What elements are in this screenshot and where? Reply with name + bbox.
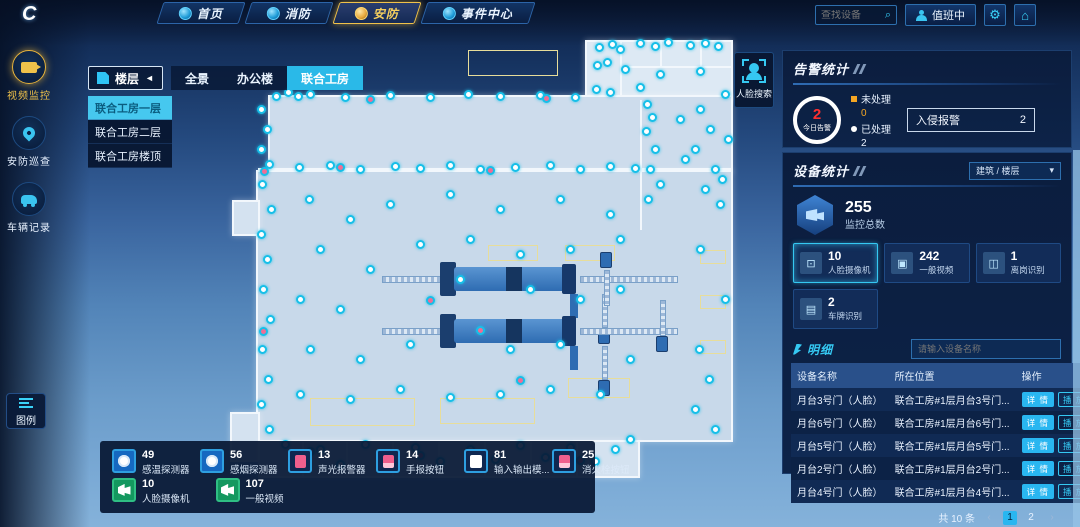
device-marker[interactable] — [566, 245, 575, 254]
face-search-label: 人脸搜索 — [736, 87, 772, 100]
device-marker[interactable] — [656, 70, 665, 79]
device-marker[interactable] — [636, 39, 645, 48]
pagination-total: 共 10 条 — [938, 510, 975, 525]
device-marker[interactable] — [426, 93, 435, 102]
device-name-search-input[interactable] — [918, 344, 1054, 354]
legend-label: 消火栓按钮 — [582, 462, 630, 476]
general-video-legend-icon — [216, 478, 240, 502]
device-marker[interactable] — [464, 90, 473, 99]
device-marker[interactable] — [496, 92, 505, 101]
device-marker[interactable] — [346, 215, 355, 224]
flash-icon — [793, 344, 802, 355]
tab-label: 首页 — [197, 5, 223, 22]
legend-count: 14 — [406, 449, 444, 462]
device-marker[interactable] — [426, 296, 435, 305]
app-root: C 首页 消防 安防 事件中心 ⌕ — [0, 0, 1080, 527]
device-marker[interactable] — [631, 164, 640, 173]
on-duty-button[interactable]: 值班中 — [905, 4, 976, 26]
duty-person-icon — [916, 10, 927, 21]
device-legend-bar: 49 感温探测器 56 感烟探测器 13 声光报警器 — [100, 441, 595, 513]
monitor-total: 255 监控总数 — [783, 187, 1071, 241]
card-face-camera[interactable]: ⊡ 10 人脸摄像机 — [793, 243, 878, 283]
scrollbar[interactable] — [1073, 150, 1080, 527]
legend-manual-alarm-button[interactable]: 14 手报按钮 — [376, 449, 438, 476]
today-alarm-gauge: 2 今日告警 — [793, 96, 841, 144]
device-location: 联合工房#1层月台4号门... — [889, 480, 1016, 503]
fire-tab-icon — [267, 7, 280, 20]
sidebar-item-vehicle-records[interactable]: 车辆记录 — [7, 182, 51, 234]
legend-count: 107 — [246, 478, 284, 491]
device-marker[interactable] — [306, 345, 315, 354]
building-floor-filter-dropdown[interactable]: 建筑 / 楼层 ▾ — [969, 162, 1061, 180]
card-off-post-recognition[interactable]: ◫ 1 离岗识别 — [976, 243, 1061, 283]
device-marker[interactable] — [316, 245, 325, 254]
manual-alarm-button-icon — [376, 449, 400, 473]
app-logo: C — [22, 3, 48, 27]
device-marker[interactable] — [636, 83, 645, 92]
device-marker[interactable] — [476, 165, 485, 174]
device-marker[interactable] — [691, 405, 700, 414]
legend-label: 感烟探测器 — [230, 462, 278, 476]
device-marker[interactable] — [642, 127, 651, 136]
device-marker[interactable] — [691, 145, 700, 154]
device-marker[interactable] — [664, 38, 673, 47]
face-search-button[interactable]: 人脸搜索 — [734, 52, 774, 108]
device-marker[interactable] — [260, 167, 269, 176]
today-alarm-label: 今日告警 — [803, 123, 831, 133]
table-row: 月台2号门（人脸） 联合工房#1层月台2号门... 详 情 播 放 回 放 — [791, 457, 1080, 480]
pagination-prev[interactable]: ‹ — [982, 511, 996, 525]
detail-button[interactable]: 详 情 — [1022, 392, 1054, 407]
gear-icon: ⚙ — [989, 7, 1001, 23]
device-location: 联合工房#1层月台3号门... — [889, 388, 1016, 411]
legend-label: 感温探测器 — [142, 462, 190, 476]
home-button[interactable]: ⌂ — [1014, 4, 1036, 26]
settings-button[interactable]: ⚙ — [984, 4, 1006, 26]
sidebar-item-label: 视频监控 — [7, 87, 51, 102]
pagination-page-1[interactable]: 1 — [1003, 511, 1017, 525]
device-marker[interactable] — [718, 175, 727, 184]
monitor-total-label: 监控总数 — [845, 216, 885, 231]
device-marker[interactable] — [696, 245, 705, 254]
device-location: 联合工房#1层月台2号门... — [889, 457, 1016, 480]
io-module-icon — [464, 449, 488, 473]
device-marker[interactable] — [603, 58, 612, 67]
topbar-controls: ⌕ 值班中 ⚙ ⌂ — [815, 4, 1036, 26]
device-panel-title: 设备统计 — [793, 161, 849, 180]
device-marker[interactable] — [546, 385, 555, 394]
legend-io-module[interactable]: 81 输入输出模... — [464, 449, 526, 476]
chevron-down-icon: ▾ — [1049, 165, 1054, 176]
today-alarm-count: 2 — [813, 107, 821, 122]
monitor-total-value: 255 — [845, 199, 885, 217]
device-name: 月台3号门（人脸） — [791, 388, 889, 411]
device-marker[interactable] — [496, 390, 505, 399]
face-scan-icon — [742, 59, 766, 83]
device-marker[interactable] — [556, 195, 565, 204]
device-marker[interactable] — [263, 255, 272, 264]
home-tab-icon — [179, 7, 192, 20]
table-row: 月台4号门（人脸） 联合工房#1层月台4号门... 详 情 播 放 回 放 — [791, 480, 1080, 503]
device-marker[interactable] — [258, 180, 267, 189]
legend-face-camera[interactable]: 10 人脸摄像机 — [112, 478, 190, 505]
device-marker[interactable] — [496, 205, 505, 214]
device-marker[interactable] — [696, 67, 705, 76]
device-marker[interactable] — [616, 235, 625, 244]
device-marker[interactable] — [576, 295, 585, 304]
sidebar-item-label: 安防巡查 — [7, 153, 51, 168]
legend-hydrant-button[interactable]: 25 消火栓按钮 — [552, 449, 614, 476]
floor-option-2f[interactable]: 联合工房二层 — [88, 120, 172, 144]
device-marker[interactable] — [606, 88, 615, 97]
processed-label: 已处理 — [861, 121, 891, 136]
device-marker[interactable] — [593, 61, 602, 70]
device-marker[interactable] — [356, 355, 365, 364]
device-marker[interactable] — [516, 250, 525, 259]
card-license-plate-recognition[interactable]: ▤ 2 车牌识别 — [793, 289, 878, 329]
left-sidebar: 视频监控 安防巡查 车辆记录 — [0, 50, 58, 234]
device-marker[interactable] — [681, 155, 690, 164]
detail-button[interactable]: 详 情 — [1022, 438, 1054, 453]
device-name-search-box[interactable] — [911, 339, 1061, 359]
door-icon: ◫ — [983, 252, 1005, 274]
legend-toggle-button[interactable]: 图例 — [6, 393, 46, 429]
security-tab-icon — [355, 7, 368, 20]
device-marker[interactable] — [486, 166, 495, 175]
legend-count: 25 — [582, 449, 630, 462]
smoke-detector-icon — [200, 449, 224, 473]
video-monitor-icon — [12, 50, 46, 84]
device-marker[interactable] — [265, 425, 274, 434]
device-marker[interactable] — [259, 327, 268, 336]
card-label: 人脸摄像机 — [828, 264, 871, 276]
detail-button[interactable]: 详 情 — [1022, 461, 1054, 476]
card-label: 一般视频 — [919, 264, 953, 276]
processed-bullet — [851, 126, 857, 132]
device-marker[interactable] — [296, 295, 305, 304]
card-label: 离岗识别 — [1011, 264, 1045, 276]
device-marker[interactable] — [705, 375, 714, 384]
device-marker[interactable] — [267, 205, 276, 214]
device-marker[interactable] — [336, 305, 345, 314]
tab-security[interactable]: 安防 — [332, 2, 421, 24]
legend-label: 人脸摄像机 — [142, 491, 190, 505]
pagination-next[interactable]: › — [1045, 511, 1059, 525]
unprocessed-label: 未处理 — [861, 91, 891, 106]
video-camera-icon: ▣ — [891, 252, 913, 274]
pagination-page-2[interactable]: 2 — [1024, 511, 1038, 525]
unprocessed-value: 0 — [861, 108, 891, 119]
device-marker[interactable] — [701, 185, 710, 194]
device-marker[interactable] — [724, 135, 733, 144]
search-icon: ⌕ — [885, 10, 891, 21]
card-value: 242 — [919, 250, 953, 263]
floor-selector-button[interactable]: 楼层 ◄ — [88, 66, 163, 90]
legend-sound-light-alarm[interactable]: 13 声光报警器 — [288, 449, 350, 476]
patrol-pin-icon — [12, 116, 46, 150]
duty-label: 值班中 — [932, 7, 965, 23]
hydrant-button-icon — [552, 449, 576, 473]
collapse-arrow-icon: ◄ — [145, 73, 154, 83]
intrusion-value: 2 — [1020, 114, 1026, 126]
device-marker[interactable] — [646, 165, 655, 174]
device-marker[interactable] — [706, 125, 715, 134]
device-marker[interactable] — [711, 165, 720, 174]
device-marker[interactable] — [466, 235, 475, 244]
device-marker[interactable] — [616, 285, 625, 294]
device-marker[interactable] — [386, 91, 395, 100]
unprocessed-bullet — [851, 96, 857, 102]
device-marker[interactable] — [259, 285, 268, 294]
floor-button-label: 楼层 — [115, 70, 139, 87]
detail-section-title: 明细 — [793, 341, 833, 358]
device-marker[interactable] — [686, 41, 695, 50]
device-marker[interactable] — [711, 425, 720, 434]
legend-smoke-detector[interactable]: 56 感烟探测器 — [200, 449, 262, 476]
device-marker[interactable] — [257, 400, 266, 409]
device-marker[interactable] — [257, 230, 266, 239]
floor-dropdown: 联合工房一层 联合工房二层 联合工房楼顶 — [88, 96, 172, 168]
legend-label: 输入输出模... — [494, 462, 549, 476]
tab-label: 事件中心 — [461, 5, 513, 22]
device-marker[interactable] — [595, 43, 604, 52]
main-nav: 首页 消防 安防 事件中心 — [160, 2, 532, 24]
device-location: 联合工房#1层月台6号门... — [889, 411, 1016, 434]
sidebar-item-label: 车辆记录 — [7, 219, 51, 234]
device-marker[interactable] — [456, 275, 465, 284]
device-marker[interactable] — [721, 90, 730, 99]
sound-light-alarm-icon — [288, 449, 312, 473]
device-marker[interactable] — [695, 345, 704, 354]
tab-fire[interactable]: 消防 — [244, 2, 333, 24]
device-marker[interactable] — [643, 100, 652, 109]
device-marker[interactable] — [366, 265, 375, 274]
device-marker[interactable] — [446, 393, 455, 402]
legend-general-video[interactable]: 107 一般视频 — [216, 478, 284, 505]
device-marker[interactable] — [416, 164, 425, 173]
tab-label: 安防 — [373, 5, 399, 22]
sidebar-item-video-monitor[interactable]: 视频监控 — [7, 50, 51, 102]
legend-label: 声光报警器 — [318, 462, 366, 476]
device-marker[interactable] — [386, 200, 395, 209]
device-marker[interactable] — [264, 375, 273, 384]
device-statistics-panel: 设备统计 建筑 / 楼层 ▾ 255 监控总数 ⊡ 10 人脸摄像机 — [782, 152, 1072, 474]
device-type-cards: ⊡ 10 人脸摄像机 ▣ 242 一般视频 ◫ 1 离岗识别 — [783, 241, 1071, 335]
card-label: 车牌识别 — [828, 310, 862, 322]
device-marker[interactable] — [476, 326, 485, 335]
list-icon — [19, 396, 33, 410]
device-marker[interactable] — [592, 85, 601, 94]
legend-count: 81 — [494, 449, 549, 462]
device-marker[interactable] — [606, 162, 615, 171]
device-marker[interactable] — [651, 42, 660, 51]
building-tab-office[interactable]: 办公楼 — [223, 66, 287, 90]
card-value: 10 — [828, 250, 871, 263]
device-name: 月台5号门（人脸） — [791, 434, 889, 457]
device-marker[interactable] — [266, 315, 275, 324]
device-marker[interactable] — [656, 180, 665, 189]
floor-option-1f[interactable]: 联合工房一层 — [88, 96, 172, 120]
event-center-tab-icon — [443, 7, 456, 20]
device-marker[interactable] — [511, 163, 520, 172]
device-marker[interactable] — [446, 161, 455, 170]
license-plate-icon: ▤ — [800, 298, 822, 320]
card-value: 1 — [1011, 250, 1045, 263]
device-marker[interactable] — [648, 113, 657, 122]
alarm-statistics-panel: 告警统计 2 今日告警 未处理 0 已处理 2 入 — [782, 50, 1072, 148]
table-row: 月台6号门（人脸） 联合工房#1层月台6号门... 详 情 播 放 回 放 — [791, 411, 1080, 434]
device-marker[interactable] — [396, 385, 405, 394]
detail-button[interactable]: 详 情 — [1022, 484, 1054, 499]
processed-value: 2 — [861, 138, 891, 149]
heat-detector-icon — [112, 449, 136, 473]
device-marker[interactable] — [606, 210, 615, 219]
device-marker[interactable] — [571, 93, 580, 102]
device-marker[interactable] — [714, 42, 723, 51]
device-marker[interactable] — [346, 395, 355, 404]
pagination: 共 10 条 ‹ 1 2 › — [783, 503, 1071, 527]
device-marker[interactable] — [676, 115, 685, 124]
detail-title-text: 明细 — [807, 341, 833, 358]
camera-hexagon-icon — [795, 195, 835, 235]
device-marker[interactable] — [556, 340, 565, 349]
device-marker[interactable] — [546, 161, 555, 170]
device-marker[interactable] — [296, 390, 305, 399]
legend-count: 10 — [142, 478, 190, 491]
device-name: 月台2号门（人脸） — [791, 457, 889, 480]
device-marker[interactable] — [416, 240, 425, 249]
legend-label: 一般视频 — [246, 491, 284, 505]
floor-icon — [97, 72, 109, 84]
tab-home[interactable]: 首页 — [156, 2, 245, 24]
device-marker[interactable] — [506, 345, 515, 354]
building-tabs: 全景 办公楼 联合工房 — [171, 66, 363, 90]
house-icon: ⌂ — [1021, 8, 1029, 23]
tab-label: 消防 — [285, 5, 311, 22]
device-marker[interactable] — [258, 345, 267, 354]
device-name: 月台6号门（人脸） — [791, 411, 889, 434]
device-marker[interactable] — [651, 145, 660, 154]
floor-controls: 楼层 ◄ 全景 办公楼 联合工房 联合工房一层 联合工房二层 联合工房楼顶 — [88, 66, 363, 168]
legend-toggle-label: 图例 — [16, 412, 36, 427]
building-tab-joint-workshop[interactable]: 联合工房 — [287, 66, 363, 90]
card-value: 2 — [828, 296, 862, 309]
title-decoration — [853, 64, 872, 74]
sidebar-item-security-patrol[interactable]: 安防巡查 — [7, 116, 51, 168]
legend-heat-detector[interactable]: 49 感温探测器 — [112, 449, 174, 476]
device-location: 联合工房#1层月台5号门... — [889, 434, 1016, 457]
vehicle-icon — [12, 182, 46, 216]
legend-count: 49 — [142, 449, 190, 462]
device-search-input[interactable] — [821, 10, 885, 21]
device-marker[interactable] — [542, 94, 551, 103]
device-marker[interactable] — [596, 390, 605, 399]
device-marker[interactable] — [516, 376, 525, 385]
building-tab-panorama[interactable]: 全景 — [171, 66, 223, 90]
device-name: 月台4号门（人脸） — [791, 480, 889, 503]
intrusion-label: 入侵报警 — [916, 112, 960, 128]
device-marker[interactable] — [644, 195, 653, 204]
col-device-name: 设备名称 — [791, 363, 889, 388]
alarm-panel-title: 告警统计 — [793, 59, 849, 78]
tab-event-center[interactable]: 事件中心 — [420, 2, 535, 24]
device-marker[interactable] — [406, 340, 415, 349]
device-marker[interactable] — [446, 190, 455, 199]
device-marker[interactable] — [626, 435, 635, 444]
intrusion-alarm-box[interactable]: 入侵报警 2 — [907, 108, 1035, 132]
top-bar: C 首页 消防 安防 事件中心 ⌕ — [0, 0, 1080, 30]
device-marker[interactable] — [626, 355, 635, 364]
filter-label: 建筑 / 楼层 — [976, 164, 1020, 177]
table-row: 月台5号门（人脸） 联合工房#1层月台5号门... 详 情 播 放 回 放 — [791, 434, 1080, 457]
detail-button[interactable]: 详 情 — [1022, 415, 1054, 430]
device-marker[interactable] — [576, 165, 585, 174]
col-location: 所在位置 — [889, 363, 1016, 388]
device-search-box[interactable]: ⌕ — [815, 5, 897, 25]
device-marker[interactable] — [391, 162, 400, 171]
device-marker[interactable] — [526, 285, 535, 294]
device-marker[interactable] — [366, 95, 375, 104]
face-camera-icon: ⊡ — [800, 252, 822, 274]
device-marker[interactable] — [616, 45, 625, 54]
legend-count: 56 — [230, 449, 278, 462]
col-operation: 操作 — [1016, 363, 1080, 388]
device-marker[interactable] — [701, 39, 710, 48]
device-marker[interactable] — [696, 105, 705, 114]
device-marker[interactable] — [721, 295, 730, 304]
device-table: 设备名称 所在位置 操作 月台3号门（人脸） 联合工房#1层月台3号门... 详… — [791, 363, 1080, 503]
device-marker[interactable] — [621, 65, 630, 74]
device-marker[interactable] — [305, 195, 314, 204]
legend-label: 手报按钮 — [406, 462, 444, 476]
face-camera-legend-icon — [112, 478, 136, 502]
device-marker[interactable] — [716, 200, 725, 209]
legend-count: 13 — [318, 449, 366, 462]
table-row: 月台3号门（人脸） 联合工房#1层月台3号门... 详 情 播 放 回 放 — [791, 388, 1080, 411]
floor-option-roof[interactable]: 联合工房楼顶 — [88, 144, 172, 168]
title-decoration — [853, 166, 872, 176]
card-general-video[interactable]: ▣ 242 一般视频 — [884, 243, 969, 283]
alarm-legend: 未处理 0 已处理 2 — [851, 91, 891, 149]
